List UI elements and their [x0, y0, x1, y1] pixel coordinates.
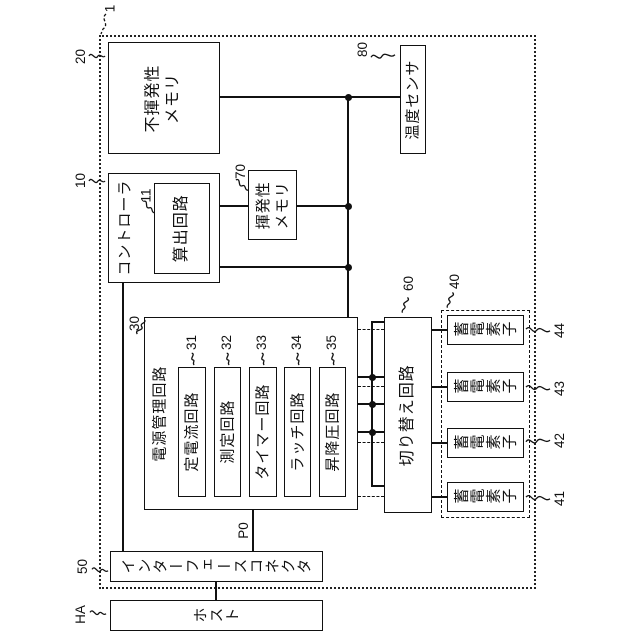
host-label: ホスト [193, 605, 241, 626]
ref-label-host: HA [70, 601, 90, 627]
ref-label-cell2: 42 [550, 428, 570, 452]
patent-figure: 1 不揮発性 メモリ 20 コントローラ 算出回路 1 [0, 0, 640, 640]
power-management-label: 電源管理回路 [150, 365, 169, 461]
ref-label-cc: 31 [182, 330, 202, 354]
timer-circuit-box: タイマー回路 [249, 367, 277, 497]
storage-cell-label: 蓄電素子 [454, 433, 518, 454]
dashed-wire-pm-sw-2 [358, 386, 384, 387]
dashed-wire-pm-sw-4 [358, 496, 384, 497]
wire-nvm-temp [220, 96, 400, 98]
leader-cell1 [525, 493, 551, 503]
buck-boost-circuit-box: 昇降圧回路 [319, 367, 346, 497]
ref-label-connector: 50 [73, 554, 93, 578]
host-box: ホスト [110, 600, 323, 631]
wire-busbar-bottom-tap [371, 485, 384, 487]
latch-circuit-box: ラッチ回路 [284, 367, 311, 497]
switching-circuit-label: 切り替え回路 [398, 364, 418, 466]
interface-connector-box: インターフェースコネクタ [110, 551, 323, 582]
ref-label-sw: 60 [399, 271, 419, 295]
leader-controller [88, 177, 106, 185]
storage-cell-box-43: 蓄電素子 [447, 372, 524, 402]
ref-label-cell4: 44 [550, 318, 570, 342]
junction-dot [369, 401, 376, 408]
leader-cell3 [525, 383, 551, 393]
interface-connector-label: インターフェースコネクタ [121, 556, 313, 577]
buck-boost-circuit-label: 昇降圧回路 [323, 392, 342, 472]
junction-dot [369, 374, 376, 381]
calculation-circuit-label: 算出回路 [172, 194, 192, 262]
junction-dot [369, 429, 376, 436]
calculation-circuit-box: 算出回路 [154, 183, 210, 274]
leader-device [97, 13, 111, 35]
wire-controller-vm [220, 205, 248, 207]
junction-dot [345, 264, 352, 271]
leader-cell2 [525, 436, 551, 446]
ref-label-p0: P0 [233, 517, 253, 543]
ref-label-latch: 34 [287, 330, 307, 354]
wire-busbar-top-tap [371, 321, 384, 323]
dashed-wire-pm-sw-1 [358, 329, 384, 330]
ref-label-meas: 32 [217, 330, 237, 354]
storage-cell-label: 蓄電素子 [454, 320, 518, 341]
timer-circuit-label: タイマー回路 [253, 384, 272, 480]
wire-connector-host [215, 582, 217, 600]
ref-label-updown: 35 [322, 330, 342, 354]
storage-cell-label: 蓄電素子 [454, 377, 518, 398]
storage-cell-box-44: 蓄電素子 [447, 315, 524, 345]
leader-host [89, 608, 108, 618]
storage-cell-label: 蓄電素子 [454, 487, 518, 508]
leader-cell4 [525, 325, 551, 335]
storage-cell-box-42: 蓄電素子 [447, 428, 524, 458]
leader-connector [91, 565, 110, 575]
measurement-circuit-label: 測定回路 [218, 400, 237, 464]
dashed-wire-pm-sw-3 [358, 442, 384, 443]
latch-circuit-label: ラッチ回路 [288, 392, 307, 472]
storage-cell-box-41: 蓄電素子 [447, 482, 524, 512]
wire-controller-bus [220, 266, 349, 268]
volatile-memory-label: 揮発性 メモリ [253, 181, 291, 229]
wire-controller-connector [122, 283, 124, 551]
ref-label-cell1: 41 [550, 486, 570, 510]
leader-nvm [88, 52, 106, 60]
constant-current-circuit-box: 定電流回路 [178, 367, 206, 497]
constant-current-circuit-label: 定電流回路 [182, 392, 201, 472]
temperature-sensor-label: 温度センサ [403, 59, 422, 139]
ref-label-cell3: 43 [550, 376, 570, 400]
volatile-memory-box: 揮発性 メモリ [248, 170, 297, 240]
wire-vm-bus [297, 205, 349, 207]
nonvolatile-memory-box: 不揮発性 メモリ [108, 42, 220, 154]
temperature-sensor-box: 温度センサ [400, 45, 426, 154]
switching-circuit-box: 切り替え回路 [384, 317, 432, 513]
nonvolatile-memory-label: 不揮発性 メモリ [144, 64, 185, 132]
junction-dot [345, 94, 352, 101]
junction-dot [345, 203, 352, 210]
measurement-circuit-box: 測定回路 [214, 367, 241, 497]
ref-label-timer: 33 [252, 330, 272, 354]
controller-label: コントローラ [115, 180, 134, 276]
